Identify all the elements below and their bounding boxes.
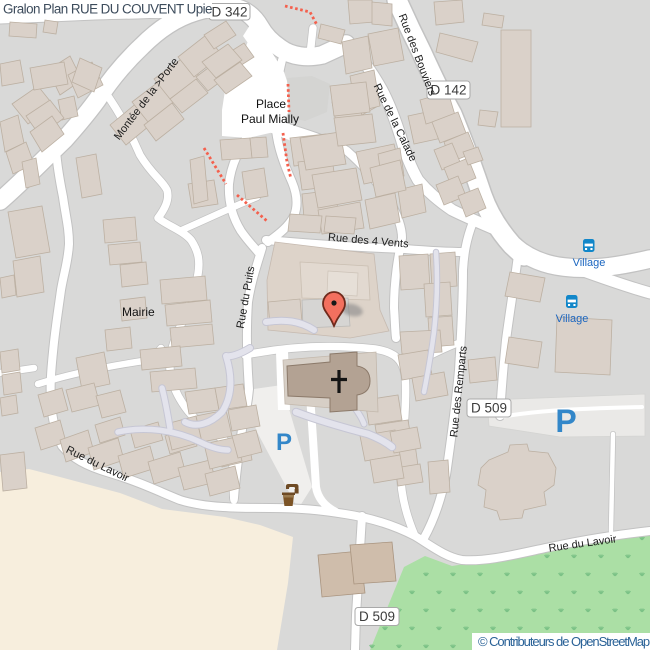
svg-text:Paul Mially: Paul Mially: [241, 112, 299, 126]
svg-text:D 509: D 509: [359, 609, 395, 624]
svg-text:Mairie: Mairie: [122, 305, 155, 319]
svg-text:Village: Village: [556, 313, 589, 325]
svg-text:D 509: D 509: [471, 401, 507, 416]
svg-text:D 342: D 342: [211, 5, 247, 20]
svg-text:Place: Place: [256, 97, 286, 111]
svg-text:P: P: [276, 429, 292, 456]
svg-text:P: P: [555, 403, 576, 439]
svg-text:Village: Village: [573, 257, 606, 269]
svg-text:Gralon Plan RUE DU COUVENT Upi: Gralon Plan RUE DU COUVENT Upie: [3, 2, 212, 17]
svg-text:© Contributeurs de OpenStreetM: © Contributeurs de OpenStreetMap: [478, 634, 650, 649]
